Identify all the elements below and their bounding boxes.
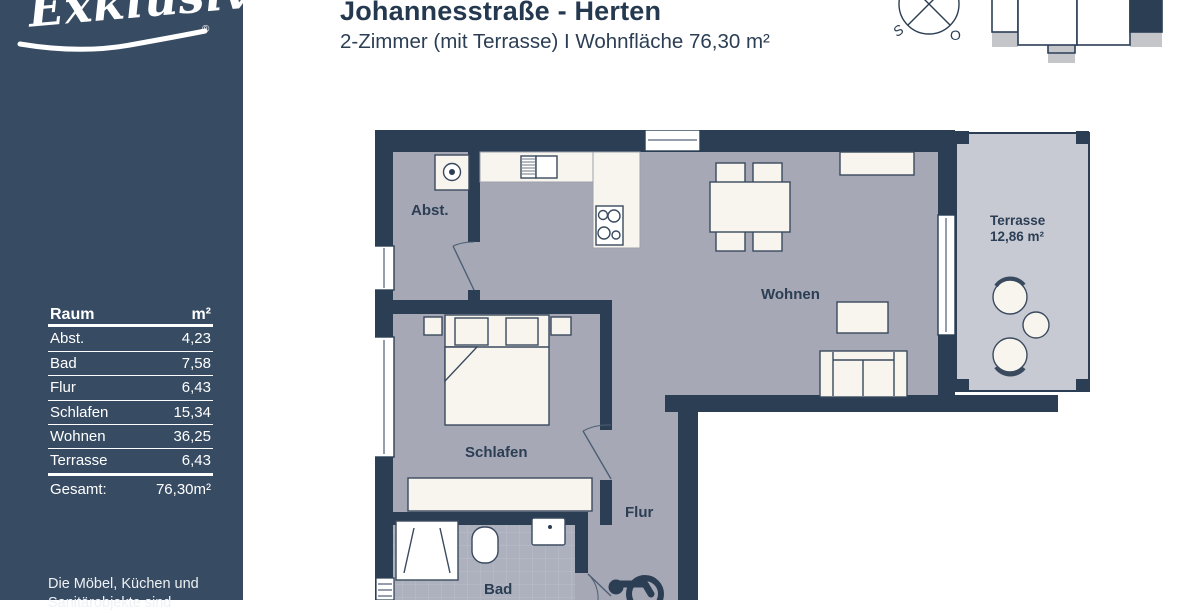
washbasin-icon	[532, 518, 565, 545]
window-storage	[375, 246, 394, 290]
page-subtitle: 2-Zimmer (mit Terrasse) I Wohnfläche 76,…	[340, 30, 770, 54]
window-kitchen	[645, 130, 700, 151]
sideboard	[840, 152, 914, 175]
label-schlafen: Schlafen	[465, 444, 528, 461]
nightstand	[424, 317, 442, 335]
coffee-table	[837, 302, 888, 333]
radiator	[376, 578, 394, 600]
label-flur: Flur	[625, 504, 653, 521]
cooktop-icon	[596, 206, 623, 245]
terrace-door-window	[938, 215, 955, 335]
room-area: 36,25	[173, 425, 211, 448]
label-abst: Abst.	[411, 202, 449, 219]
compass-south-label: S	[890, 21, 907, 40]
table-row: Abst. 4,23	[48, 327, 213, 351]
compass-east-label: O	[950, 27, 961, 43]
total-label: Gesamt:	[50, 476, 107, 503]
disclaimer-text: Die Möbel, Küchen und Sanitärobjekte sin…	[48, 575, 238, 613]
minimap-balcony	[992, 31, 1018, 47]
label-terrasse: Terrasse	[990, 213, 1046, 228]
minimap-balcony	[1130, 31, 1162, 47]
window-bedroom	[375, 337, 394, 457]
table-row: Wohnen 36,25	[48, 425, 213, 449]
registered-mark: ®	[202, 24, 209, 35]
site-plan-minimap	[985, 0, 1170, 70]
col-room-header: Raum	[50, 303, 94, 326]
sidebar: Exklusiv ® Raum m² Abst. 4,23 Bad 7,58 F…	[0, 0, 243, 600]
room-area: 7,58	[182, 352, 211, 375]
table-row: Terrasse 6,43	[48, 449, 213, 473]
room-name: Bad	[50, 352, 77, 375]
room-name: Terrasse	[50, 449, 108, 472]
washing-machine-icon	[435, 155, 469, 190]
room-area: 6,43	[182, 449, 211, 472]
page: Exklusiv ® Raum m² Abst. 4,23 Bad 7,58 F…	[0, 0, 1200, 600]
table-row: Flur 6,43	[48, 376, 213, 400]
label-terrasse-area: 12,86 m²	[990, 229, 1045, 244]
minimap-balcony	[1048, 45, 1075, 63]
col-area-header: m²	[191, 303, 211, 326]
shower-icon	[396, 521, 458, 580]
disclaimer-line-2: Sanitärobjekte sind	[48, 594, 238, 613]
floor-plan: Abst. Schlafen Bad Flur Wohnen Terrasse …	[375, 130, 1090, 600]
minimap-unit	[1077, 0, 1130, 45]
sofa	[820, 351, 907, 397]
minimap-unit	[992, 0, 1018, 32]
minimap-highlighted-unit	[1130, 0, 1162, 32]
label-bad: Bad	[484, 581, 512, 598]
wardrobe	[408, 478, 592, 511]
kitchen-sink-icon	[521, 156, 557, 178]
room-area: 15,34	[173, 401, 211, 424]
toilet-icon	[472, 527, 498, 563]
room-name: Wohnen	[50, 425, 106, 448]
room-name: Abst.	[50, 327, 84, 350]
room-name: Flur	[50, 376, 76, 399]
room-area-table: Raum m² Abst. 4,23 Bad 7,58 Flur 6,43 Sc…	[48, 303, 213, 502]
table-row: Bad 7,58	[48, 352, 213, 376]
compass-icon: S O	[860, 0, 990, 55]
bed	[445, 315, 549, 425]
room-name: Schlafen	[50, 401, 108, 424]
terrace-table	[1023, 312, 1049, 338]
disclaimer-line-1: Die Möbel, Küchen und	[48, 575, 238, 594]
total-value: 76,30m²	[156, 476, 211, 503]
minimap-unit	[1018, 0, 1077, 45]
page-title: Johannesstraße - Herten	[340, 0, 661, 27]
table-header-row: Raum m²	[48, 303, 213, 327]
brand-logo: Exklusiv ®	[0, 0, 243, 60]
table-total-row: Gesamt: 76,30m²	[48, 474, 213, 502]
nightstand	[551, 317, 571, 335]
label-wohnen: Wohnen	[761, 286, 820, 303]
room-area: 6,43	[182, 376, 211, 399]
table-row: Schlafen 15,34	[48, 401, 213, 425]
room-area: 4,23	[182, 327, 211, 350]
